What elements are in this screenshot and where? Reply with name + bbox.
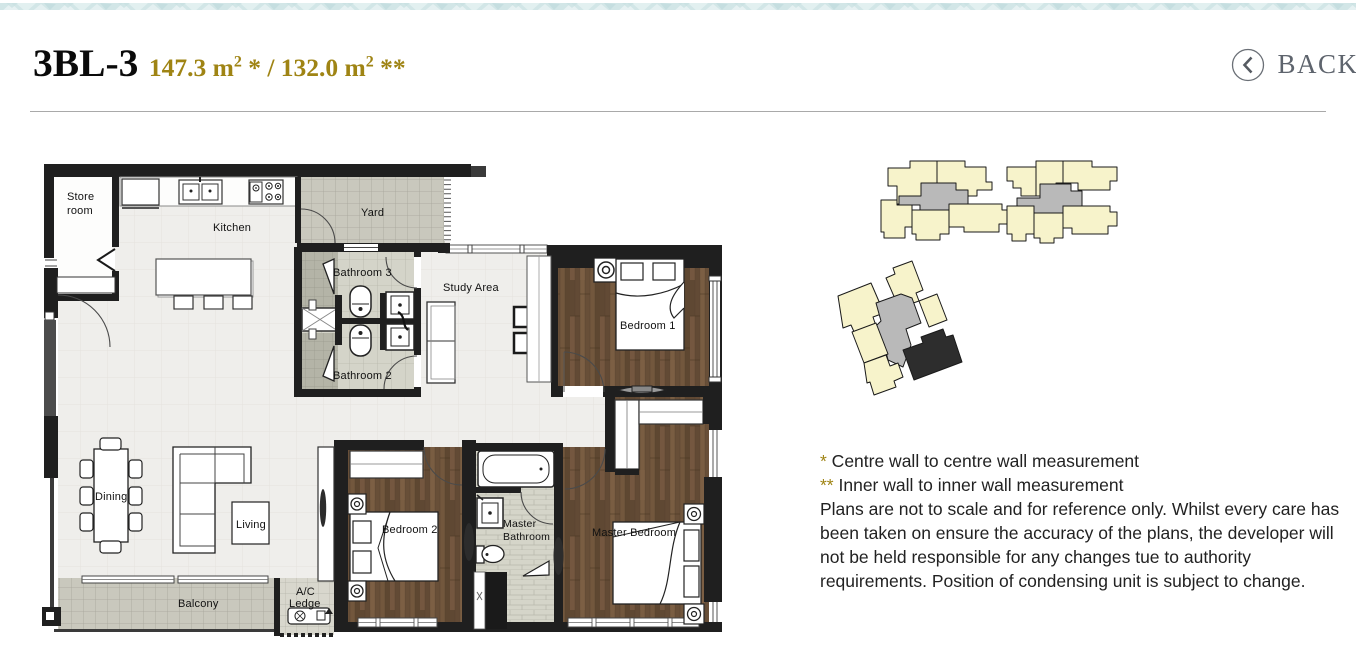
svg-text:Living: Living xyxy=(236,519,266,531)
svg-text:Yard: Yard xyxy=(361,207,384,219)
svg-text:Bathroom 2: Bathroom 2 xyxy=(333,370,392,382)
svg-text:Bedroom 2: Bedroom 2 xyxy=(382,524,438,536)
svg-text:Master Bedroom: Master Bedroom xyxy=(592,527,676,539)
svg-text:Balcony: Balcony xyxy=(178,598,219,610)
svg-text:room: room xyxy=(67,205,93,217)
svg-text:Dining: Dining xyxy=(95,491,127,503)
svg-text:Kitchen: Kitchen xyxy=(213,222,251,234)
svg-text:Bathroom 3: Bathroom 3 xyxy=(333,267,392,279)
svg-text:A/C: A/C xyxy=(296,586,315,598)
svg-text:Ledge: Ledge xyxy=(289,598,321,610)
svg-text:Bathroom: Bathroom xyxy=(503,531,550,543)
svg-text:Store: Store xyxy=(67,191,94,203)
svg-text:Master: Master xyxy=(503,518,537,530)
svg-text:Bedroom 1: Bedroom 1 xyxy=(620,320,676,332)
svg-text:Study Area: Study Area xyxy=(443,282,499,294)
